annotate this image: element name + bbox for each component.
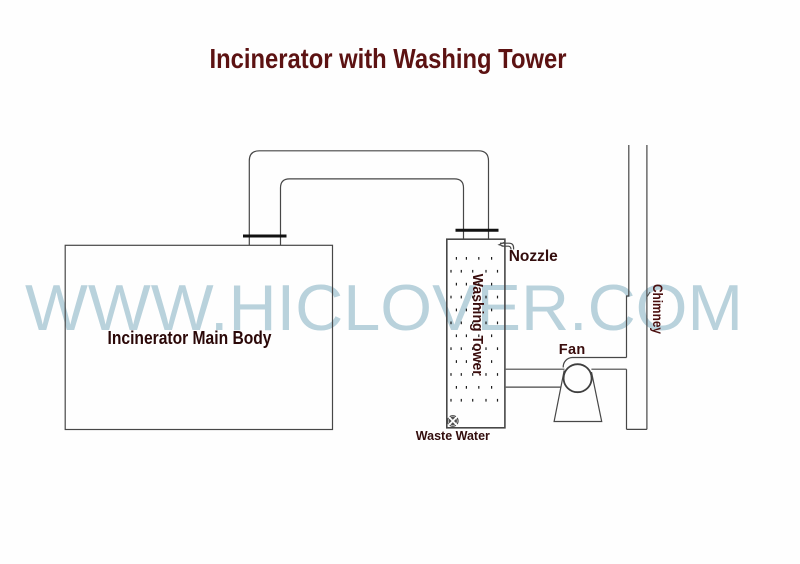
svg-text:Fan: Fan [559,342,586,358]
svg-text:Washing Tower: Washing Tower [469,274,486,376]
svg-text:Chimney: Chimney [650,284,666,334]
svg-text:Incinerator with Washing Tower: Incinerator with Washing Tower [210,43,567,74]
svg-text:Waste Water: Waste Water [416,429,490,443]
svg-text:Nozzle: Nozzle [509,248,558,265]
svg-text:Incinerator Main Body: Incinerator Main Body [108,327,273,348]
